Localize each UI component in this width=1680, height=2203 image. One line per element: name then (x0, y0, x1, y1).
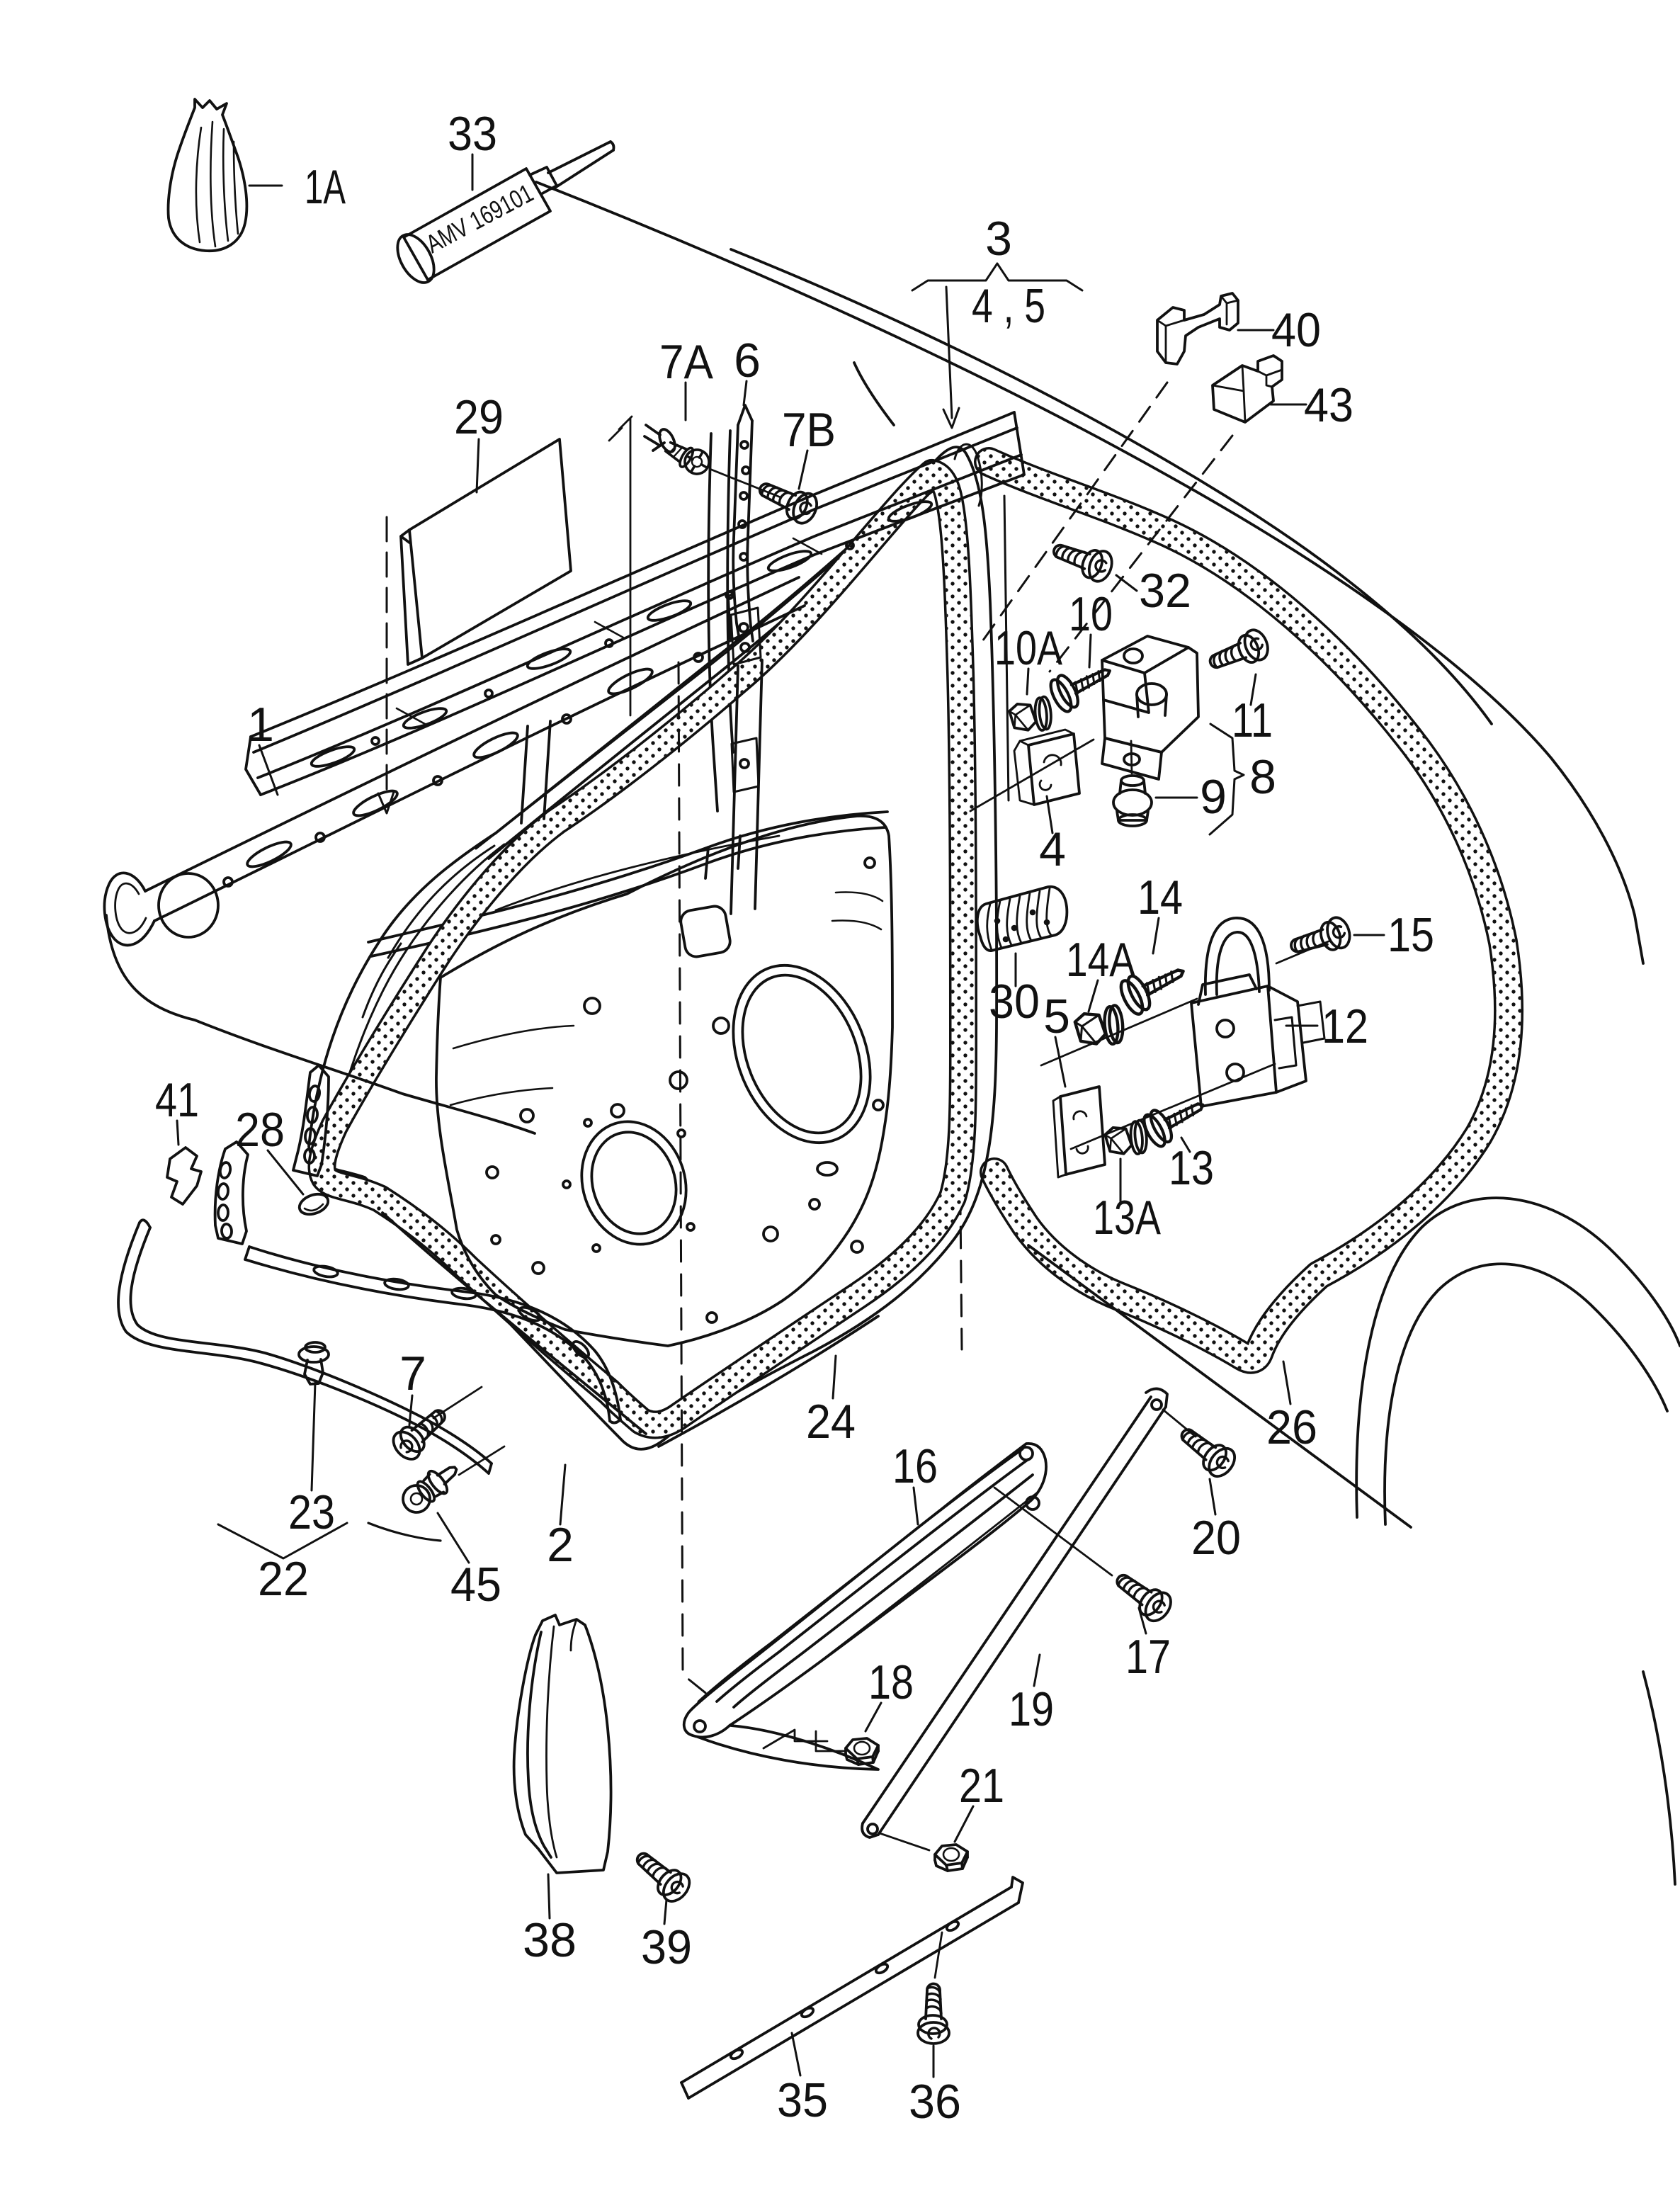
svg-text:30: 30 (989, 975, 1040, 1029)
svg-text:32: 32 (1139, 564, 1191, 618)
svg-text:28: 28 (235, 1103, 285, 1157)
svg-text:41: 41 (155, 1073, 199, 1127)
svg-text:1: 1 (247, 698, 274, 752)
svg-text:22: 22 (258, 1552, 309, 1606)
svg-text:12: 12 (1322, 999, 1368, 1053)
svg-text:40: 40 (1271, 303, 1321, 357)
svg-text:39: 39 (641, 1920, 692, 1974)
svg-text:35: 35 (777, 2073, 828, 2127)
svg-text:29: 29 (454, 390, 504, 444)
svg-text:9: 9 (1200, 770, 1227, 824)
svg-text:23: 23 (288, 1485, 335, 1539)
svg-text:4 , 5: 4 , 5 (972, 279, 1045, 333)
svg-text:16: 16 (892, 1439, 938, 1493)
svg-text:43: 43 (1304, 378, 1353, 432)
svg-text:26: 26 (1266, 1400, 1317, 1454)
svg-text:24: 24 (806, 1395, 856, 1449)
svg-text:45: 45 (450, 1558, 501, 1612)
svg-text:3: 3 (985, 212, 1012, 266)
svg-text:19: 19 (1009, 1682, 1054, 1736)
svg-text:11: 11 (1232, 693, 1273, 747)
svg-text:21: 21 (959, 1759, 1004, 1813)
svg-text:1A: 1A (305, 160, 346, 214)
svg-text:18: 18 (868, 1655, 914, 1709)
svg-text:10: 10 (1069, 587, 1113, 641)
svg-text:10A: 10A (994, 621, 1063, 675)
svg-text:4: 4 (1039, 822, 1066, 876)
svg-text:15: 15 (1387, 908, 1434, 962)
svg-text:8: 8 (1249, 750, 1276, 804)
svg-text:13A: 13A (1093, 1191, 1162, 1245)
svg-text:38: 38 (523, 1913, 577, 1967)
svg-text:14A: 14A (1066, 933, 1136, 987)
svg-text:7: 7 (399, 1347, 426, 1400)
svg-text:7B: 7B (782, 403, 836, 457)
svg-text:6: 6 (734, 334, 761, 387)
svg-text:36: 36 (909, 2075, 961, 2129)
svg-text:5: 5 (1043, 990, 1070, 1043)
svg-text:17: 17 (1125, 1630, 1171, 1684)
svg-text:14: 14 (1137, 871, 1183, 924)
svg-text:20: 20 (1191, 1511, 1241, 1565)
svg-text:2: 2 (547, 1518, 574, 1572)
svg-text:13: 13 (1169, 1141, 1214, 1195)
svg-text:33: 33 (448, 107, 497, 161)
svg-text:7A: 7A (659, 335, 714, 389)
